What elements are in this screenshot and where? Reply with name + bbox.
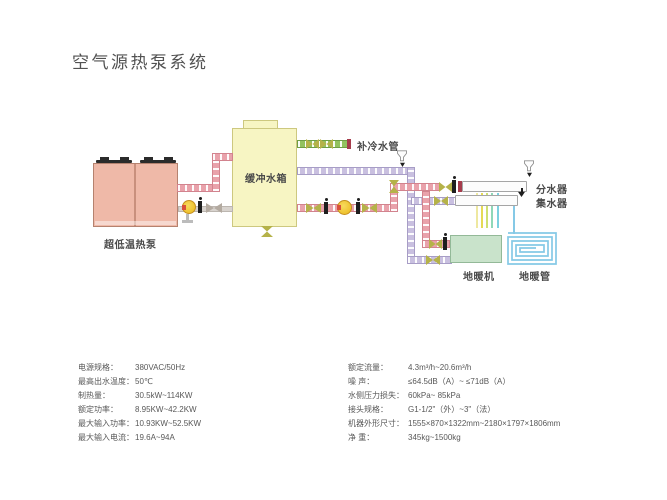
spec-label: 额定功率： [78, 404, 135, 415]
spec-row: 机器外形尺寸： 1555×870×1322mm~2180×1797×1806mm [348, 416, 560, 430]
spec-label: 最大输入功率： [78, 418, 135, 429]
drip-icon [527, 172, 532, 177]
spec-label: 水侧压力损失： [348, 390, 408, 401]
spec-label: 机器外形尺寸： [348, 418, 408, 429]
spec-value: 345kg~1500kg [408, 433, 461, 442]
shutoff-valve-icon [443, 237, 447, 250]
valve-icon [439, 182, 452, 192]
spec-row: 最大输入功率： 10.93KW~52.5KW [78, 416, 201, 430]
return-pipe [407, 167, 415, 264]
spec-label: 最高出水温度： [78, 376, 135, 387]
spec-row: 电源规格： 380VAC/50Hz [78, 360, 201, 374]
floor-heating-unit [450, 235, 502, 263]
collector-bar [455, 195, 518, 206]
spec-column-right: 额定流量： 4.3m³/h~20.6m³/h 噪 声： ≤64.5dB（A）~ … [348, 360, 560, 444]
spec-value: 50℃ [135, 377, 153, 386]
spec-value: G1-1/2"（外）~3"（法） [408, 404, 495, 415]
spec-label: 最大输入电流： [78, 432, 135, 443]
shutoff-valve-icon [324, 202, 328, 214]
spec-row: 制热量： 30.5kW~114KW [78, 388, 201, 402]
spec-row: 额定功率： 8.95KW~42.2KW [78, 402, 201, 416]
spec-label: 接头规格： [348, 404, 408, 415]
fan-grille-tab [120, 157, 129, 160]
spec-row: 净 重： 345kg~1500kg [348, 430, 560, 444]
drain-valve-icon [521, 188, 523, 192]
cold-water-pipe-label: 补冷水管 [357, 138, 399, 153]
air-vent-icon [523, 160, 535, 172]
spec-row: 最高出水温度： 50℃ [78, 374, 201, 388]
heat-pump-base [95, 221, 176, 225]
drain-fitting-icon [182, 220, 193, 223]
spec-label: 额定流量： [348, 362, 408, 373]
distributor-label: 分水器 [536, 181, 568, 196]
fan-grille-tab [164, 157, 173, 160]
pipe-end-cap [347, 139, 351, 149]
spec-value: 30.5kW~114KW [135, 391, 192, 400]
shutoff-valve-icon [198, 201, 202, 213]
pump-icon [337, 200, 352, 215]
fan-grille-tab [100, 157, 109, 160]
tank-drain-valve-icon [261, 226, 273, 237]
spec-value: ≤64.5dB（A）~ ≤71dB（A） [408, 376, 510, 387]
hot-pipe [390, 183, 440, 191]
spec-row: 水侧压力损失： 60kPa~ 85kPa [348, 388, 560, 402]
floor-heating-pipe-label: 地暖管 [519, 268, 551, 283]
return-pipe [297, 167, 415, 175]
collector-label: 集水器 [536, 195, 568, 210]
spec-column-left: 电源规格： 380VAC/50Hz 最高出水温度： 50℃ 制热量： 30.5k… [78, 360, 201, 444]
spec-label: 制热量： [78, 390, 135, 401]
distributor-bar [462, 181, 527, 192]
spec-label: 噪 声： [348, 376, 408, 387]
spec-label: 净 重： [348, 432, 408, 443]
spec-value: 10.93KW~52.5KW [135, 419, 201, 428]
buffer-tank-label: 缓冲水箱 [245, 170, 287, 185]
spec-value: 19.6A~94A [135, 433, 175, 442]
spec-row: 接头规格： G1-1/2"（外）~3"（法） [348, 402, 560, 416]
heat-pump-divider [134, 164, 136, 226]
fan-grille-tab [144, 157, 153, 160]
fan-grille-icon [96, 160, 132, 163]
spec-row: 最大输入电流： 19.6A~94A [78, 430, 201, 444]
distributor-end-cap [458, 181, 462, 192]
spec-label: 电源规格： [78, 362, 135, 373]
spec-value: 380VAC/50Hz [135, 363, 185, 372]
spec-value: 8.95KW~42.2KW [135, 405, 197, 414]
spec-row: 额定流量： 4.3m³/h~20.6m³/h [348, 360, 560, 374]
fan-grille-icon [140, 160, 176, 163]
spec-value: 60kPa~ 85kPa [408, 391, 460, 400]
spec-row: 噪 声： ≤64.5dB（A）~ ≤71dB（A） [348, 374, 560, 388]
page-title: 空气源热泵系统 [72, 48, 209, 73]
floor-coil-icon [506, 230, 558, 266]
spec-value: 4.3m³/h~20.6m³/h [408, 363, 471, 372]
heat-pump-label: 超低温热泵 [104, 236, 157, 251]
hot-pipe [212, 153, 233, 161]
shutoff-valve-icon [356, 202, 360, 214]
floor-heating-unit-label: 地暖机 [463, 268, 495, 283]
spec-value: 1555×870×1322mm~2180×1797×1806mm [408, 419, 560, 428]
pump-icon [182, 200, 196, 214]
product-diagram-page: 空气源热泵系统 [0, 0, 667, 500]
shutoff-valve-icon [452, 180, 456, 193]
